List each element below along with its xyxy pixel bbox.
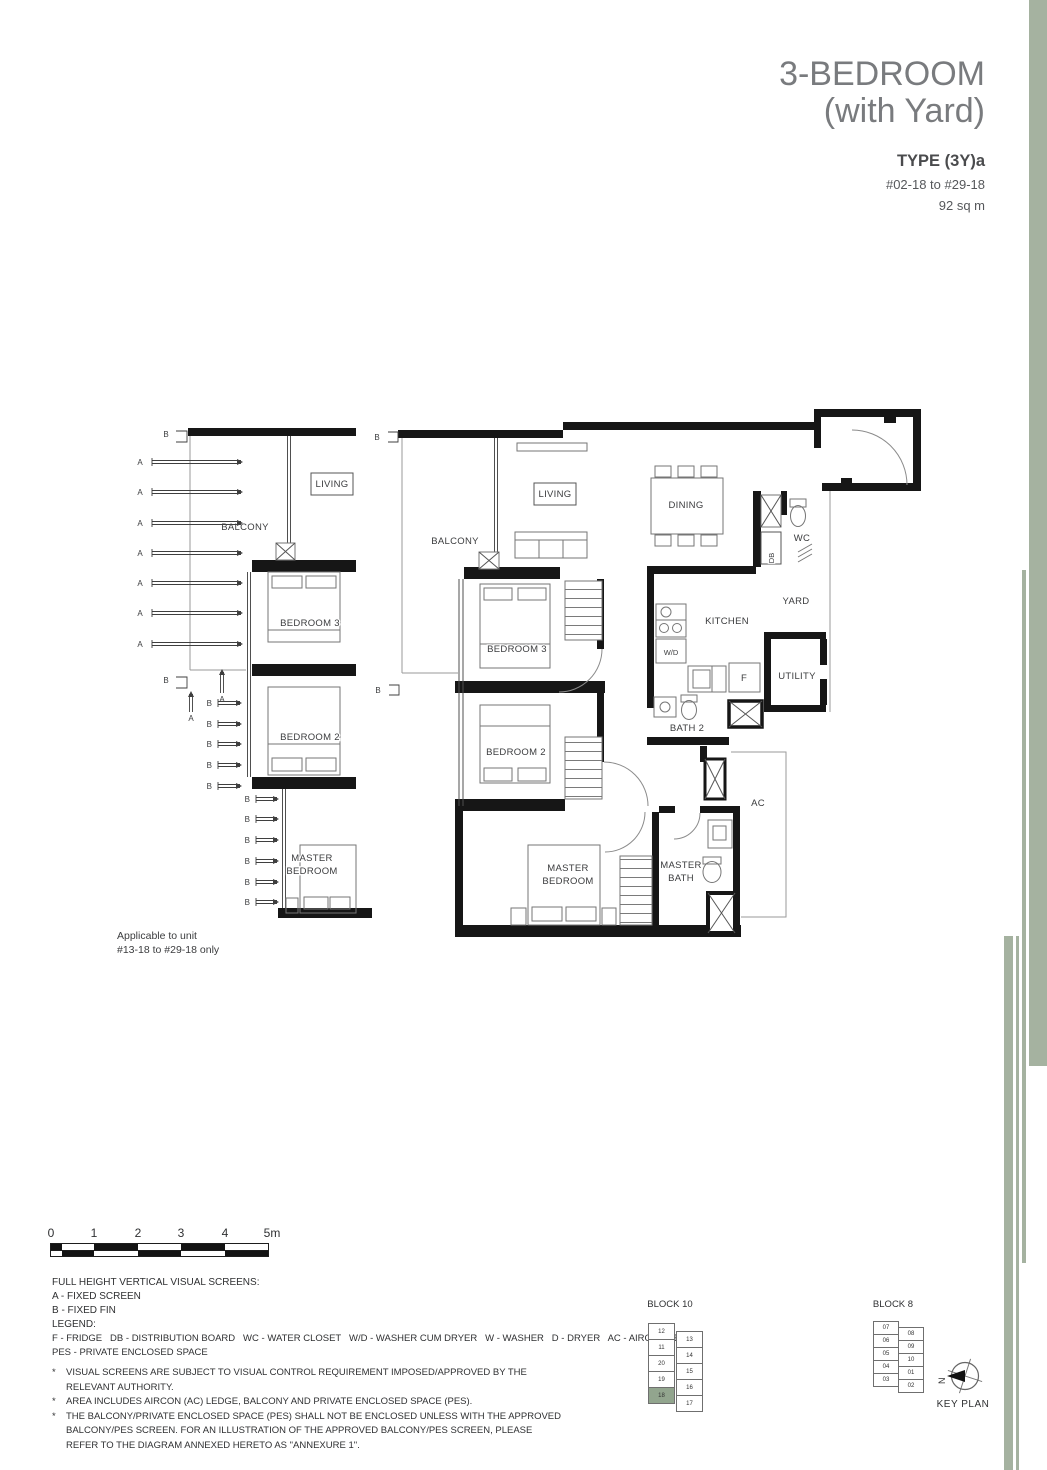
left-bedroom2-label: BEDROOM 2 bbox=[280, 732, 340, 743]
screen-b-label: B bbox=[163, 430, 168, 439]
main-plan: BALCONY LIVING DINING WC DB YARD KITCHEN… bbox=[374, 409, 921, 937]
screen-a-label: A bbox=[137, 458, 143, 467]
keyplan-unit: 11 bbox=[648, 1339, 675, 1356]
legend-line2: PES - PRIVATE ENCLOSED SPACE bbox=[52, 1346, 701, 1360]
dining-label: DINING bbox=[668, 500, 703, 511]
keyplan-unit: 04 bbox=[873, 1360, 899, 1374]
legend-block: LEGEND: F - FRIDGE DB - DISTRIBUTION BOA… bbox=[52, 1318, 701, 1360]
left-master-label-2: BEDROOM bbox=[286, 866, 337, 877]
left-balcony-label: BALCONY bbox=[221, 522, 269, 533]
left-plan-note-line2: #13-18 to #29-18 only bbox=[117, 943, 219, 957]
keyplan-unit: 20 bbox=[648, 1355, 675, 1372]
scale-tick: 1 bbox=[91, 1226, 98, 1240]
screen-a-label: A bbox=[219, 695, 225, 704]
note-item: * AREA INCLUDES AIRCON (AC) LEDGE, BALCO… bbox=[52, 1395, 564, 1410]
visual-screens-a: A - FIXED SCREEN bbox=[52, 1290, 259, 1304]
wc-label: WC bbox=[794, 533, 810, 544]
scale-bar: 0 1 2 3 4 5m bbox=[50, 1226, 280, 1257]
block10-right-column: 13 14 15 16 17 bbox=[676, 1332, 703, 1412]
compass-north-arrow bbox=[947, 1370, 965, 1382]
living-label: LIVING bbox=[539, 489, 572, 500]
left-plan-note-line1: Applicable to unit bbox=[117, 929, 219, 943]
note-bullet: * bbox=[52, 1410, 56, 1425]
keyplan-caption: KEY PLAN bbox=[937, 1399, 990, 1410]
keyplan-unit: 09 bbox=[898, 1340, 924, 1354]
bath2-label: BATH 2 bbox=[670, 723, 704, 734]
note-bullet: * bbox=[52, 1366, 56, 1381]
notes-block: * VISUAL SCREENS ARE SUBJECT TO VISUAL C… bbox=[52, 1366, 564, 1453]
screen-b-label: B bbox=[207, 782, 212, 791]
bedroom2-label: BEDROOM 2 bbox=[486, 747, 546, 758]
screen-b-label: B bbox=[245, 857, 250, 866]
keyplan-unit: 10 bbox=[898, 1353, 924, 1367]
master-bath-label-2: BATH bbox=[668, 873, 694, 884]
block10-label: BLOCK 10 bbox=[647, 1299, 692, 1310]
keyplan-unit: 13 bbox=[676, 1331, 703, 1348]
left-plan-note: Applicable to unit #13-18 to #29-18 only bbox=[117, 929, 219, 957]
scale-tick: 2 bbox=[135, 1226, 142, 1240]
visual-screens-title: FULL HEIGHT VERTICAL VISUAL SCREENS: bbox=[52, 1276, 259, 1290]
note-text: VISUAL SCREENS ARE SUBJECT TO VISUAL CON… bbox=[66, 1367, 527, 1393]
master-bedroom-label-1: MASTER bbox=[547, 863, 588, 874]
screen-b-label: B bbox=[207, 699, 212, 708]
keyplan-unit: 17 bbox=[676, 1395, 703, 1412]
visual-screens-b: B - FIXED FIN bbox=[52, 1304, 259, 1318]
screen-a-label: A bbox=[137, 609, 143, 618]
yard-label: YARD bbox=[783, 596, 810, 607]
block8-left-column: 07 06 05 04 03 bbox=[873, 1322, 899, 1387]
kitchen-label: KITCHEN bbox=[705, 616, 749, 627]
left-master-label-1: MASTER bbox=[291, 853, 332, 864]
visual-screens-block: FULL HEIGHT VERTICAL VISUAL SCREENS: A -… bbox=[52, 1276, 259, 1318]
keyplan-unit: 02 bbox=[898, 1379, 924, 1393]
keyplan-unit: 01 bbox=[898, 1366, 924, 1380]
screen-b-label: B bbox=[245, 878, 250, 887]
screen-b-label: B bbox=[245, 815, 250, 824]
note-text: THE BALCONY/PRIVATE ENCLOSED SPACE (PES)… bbox=[66, 1411, 561, 1451]
keyplan-unit: 05 bbox=[873, 1347, 899, 1361]
bedroom3-label: BEDROOM 3 bbox=[487, 644, 547, 655]
note-bullet: * bbox=[52, 1395, 56, 1410]
screen-b-label: B bbox=[374, 433, 379, 442]
scale-tick: 5m bbox=[264, 1226, 281, 1240]
legend-line1: F - FRIDGE DB - DISTRIBUTION BOARD WC - … bbox=[52, 1332, 701, 1346]
screen-b-label: B bbox=[163, 676, 168, 685]
scale-bar-labels: 0 1 2 3 4 5m bbox=[50, 1226, 280, 1241]
screen-b-label: B bbox=[207, 761, 212, 770]
block10-left-column: 12 11 20 19 18 bbox=[648, 1324, 675, 1404]
keyplan-unit: 08 bbox=[898, 1327, 924, 1341]
scale-tick: 4 bbox=[222, 1226, 229, 1240]
keyplan-unit: 15 bbox=[676, 1363, 703, 1380]
compass-n-label: N bbox=[938, 1378, 947, 1385]
note-item: * VISUAL SCREENS ARE SUBJECT TO VISUAL C… bbox=[52, 1366, 564, 1395]
screen-a-label: A bbox=[137, 640, 143, 649]
note-text: AREA INCLUDES AIRCON (AC) LEDGE, BALCONY… bbox=[66, 1396, 472, 1407]
door-arcs bbox=[559, 430, 907, 852]
keyplan-unit: 19 bbox=[648, 1371, 675, 1388]
keyplan-unit: 06 bbox=[873, 1334, 899, 1348]
db-label: DB bbox=[767, 553, 776, 563]
screen-b-label: B bbox=[245, 836, 250, 845]
scale-tick: 3 bbox=[178, 1226, 185, 1240]
keyplan-unit: 14 bbox=[676, 1347, 703, 1364]
left-plan: BALCONY LIVING BEDROOM 3 BEDROOM 2 MASTE… bbox=[137, 428, 372, 918]
master-bath-label-1: MASTER bbox=[660, 860, 701, 871]
screen-a-label: A bbox=[137, 549, 143, 558]
screen-a-label: A bbox=[137, 519, 143, 528]
ac-label: AC bbox=[751, 798, 765, 809]
utility-label: UTILITY bbox=[778, 671, 816, 682]
keyplan-unit-highlighted: 18 bbox=[648, 1387, 675, 1404]
scale-bar-graphic bbox=[50, 1243, 269, 1257]
fridge-label: F bbox=[741, 673, 747, 684]
screen-b-label: B bbox=[207, 720, 212, 729]
screen-b-label: B bbox=[245, 795, 250, 804]
left-living-label: LIVING bbox=[316, 479, 349, 490]
wd-label: W/D bbox=[664, 648, 679, 657]
main-plan-walls bbox=[398, 409, 921, 937]
keyplan-unit: 03 bbox=[873, 1373, 899, 1387]
screen-b-label: B bbox=[375, 686, 380, 695]
screen-a-label: A bbox=[137, 488, 143, 497]
keyplan-unit: 12 bbox=[648, 1323, 675, 1340]
screen-a-label: A bbox=[137, 579, 143, 588]
legend-title: LEGEND: bbox=[52, 1318, 701, 1332]
block8-right-column: 08 09 10 01 02 bbox=[898, 1328, 924, 1393]
screen-b-label: B bbox=[245, 898, 250, 907]
keyplan-unit: 16 bbox=[676, 1379, 703, 1396]
note-item: * THE BALCONY/PRIVATE ENCLOSED SPACE (PE… bbox=[52, 1410, 564, 1454]
keyplan-unit: 07 bbox=[873, 1321, 899, 1335]
screen-b-label: B bbox=[207, 740, 212, 749]
left-bedroom3-label: BEDROOM 3 bbox=[280, 618, 340, 629]
master-bedroom-label-2: BEDROOM bbox=[542, 876, 593, 887]
block8-label: BLOCK 8 bbox=[873, 1299, 913, 1310]
floorplan-page: 3-BEDROOM (with Yard) TYPE (3Y)a #02-18 … bbox=[0, 0, 1047, 1470]
screen-a-label: A bbox=[188, 714, 194, 723]
balcony-label: BALCONY bbox=[431, 536, 479, 547]
scale-tick: 0 bbox=[48, 1226, 55, 1240]
